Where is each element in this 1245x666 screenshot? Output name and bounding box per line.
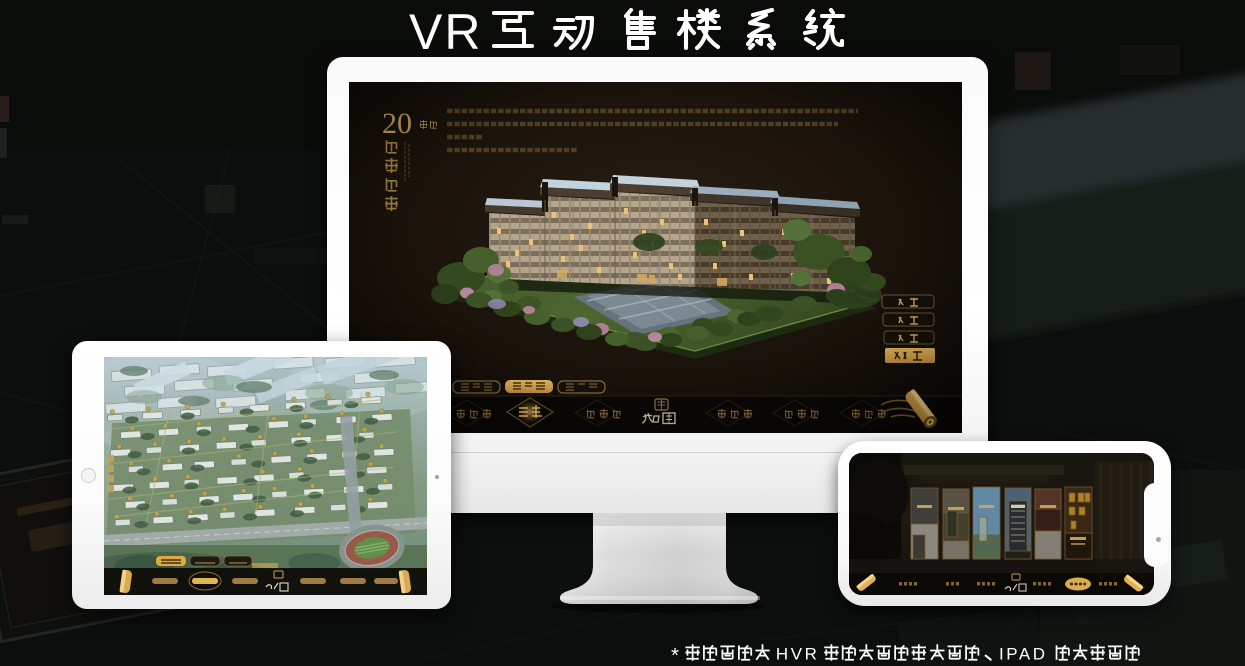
svg-text:IPAD: IPAD xyxy=(999,645,1048,664)
svg-text:HVR: HVR xyxy=(776,645,820,664)
svg-text:*: * xyxy=(671,644,679,666)
svg-text:VR: VR xyxy=(409,4,482,58)
